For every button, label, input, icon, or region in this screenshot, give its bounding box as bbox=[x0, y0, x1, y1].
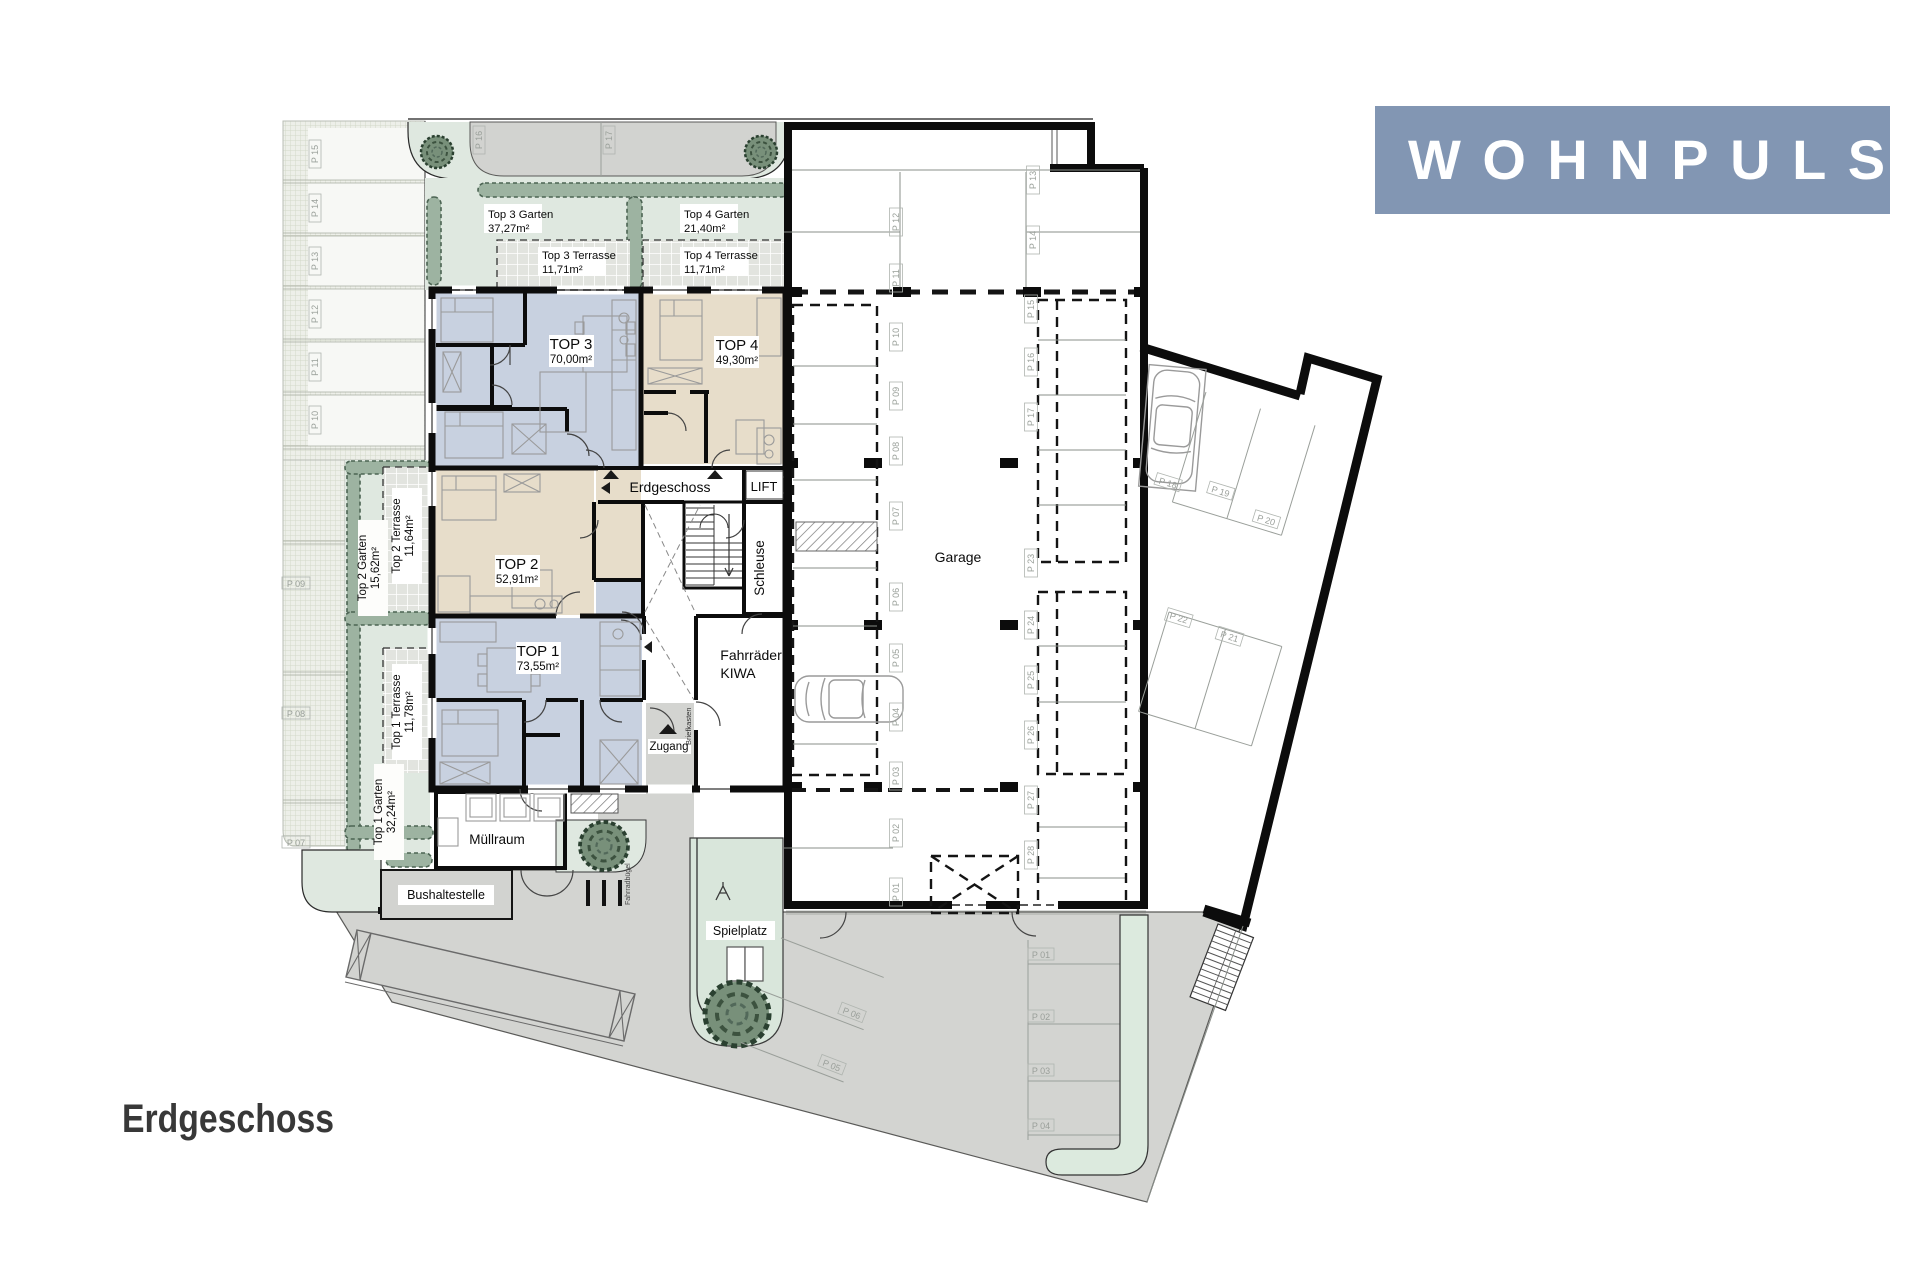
svg-text:Erdgeschoss: Erdgeschoss bbox=[122, 1097, 334, 1141]
svg-text:Top 4 Garten: Top 4 Garten bbox=[684, 209, 749, 221]
svg-text:P 10: P 10 bbox=[310, 411, 320, 429]
svg-text:P 23: P 23 bbox=[1026, 554, 1036, 572]
svg-text:WOHNPULS: WOHNPULS bbox=[1408, 128, 1907, 191]
svg-text:Top 1 Terrasse: Top 1 Terrasse bbox=[391, 674, 403, 749]
svg-text:P 05: P 05 bbox=[891, 649, 901, 667]
svg-text:P 17: P 17 bbox=[1026, 408, 1036, 426]
svg-text:Zugang: Zugang bbox=[649, 741, 688, 753]
svg-text:Top 3 Terrasse: Top 3 Terrasse bbox=[542, 250, 616, 262]
svg-text:Top 4 Terrasse: Top 4 Terrasse bbox=[684, 250, 758, 262]
svg-text:70,00m²: 70,00m² bbox=[550, 354, 592, 366]
svg-text:11,71m²: 11,71m² bbox=[684, 264, 725, 276]
svg-text:11,71m²: 11,71m² bbox=[542, 264, 583, 276]
svg-text:P 08: P 08 bbox=[287, 709, 305, 719]
svg-text:P 13: P 13 bbox=[1028, 171, 1038, 189]
svg-text:P 03: P 03 bbox=[1032, 1066, 1050, 1076]
svg-text:Müllraum: Müllraum bbox=[469, 832, 525, 847]
svg-text:P 01: P 01 bbox=[1032, 950, 1050, 960]
svg-text:P 14: P 14 bbox=[310, 199, 320, 217]
svg-text:P 24: P 24 bbox=[1026, 616, 1036, 634]
svg-text:Erdgeschoss: Erdgeschoss bbox=[630, 479, 711, 495]
svg-text:Fahrradbügel: Fahrradbügel bbox=[625, 863, 632, 905]
svg-text:11,64m²: 11,64m² bbox=[404, 515, 416, 557]
svg-text:P 11: P 11 bbox=[310, 358, 320, 376]
svg-text:Schleuse: Schleuse bbox=[752, 540, 767, 596]
svg-text:Top 2 Terrasse: Top 2 Terrasse bbox=[391, 498, 403, 573]
svg-text:P 09: P 09 bbox=[287, 579, 305, 589]
svg-text:P 07: P 07 bbox=[891, 507, 901, 525]
svg-text:P 02: P 02 bbox=[1032, 1012, 1050, 1022]
svg-text:37,27m²: 37,27m² bbox=[488, 223, 530, 235]
svg-text:Top 3 Garten: Top 3 Garten bbox=[488, 209, 553, 221]
svg-text:P 07: P 07 bbox=[287, 838, 305, 848]
svg-text:49,30m²: 49,30m² bbox=[716, 355, 758, 367]
svg-text:Top 2 Garten: Top 2 Garten bbox=[357, 535, 369, 601]
svg-text:11,78m²: 11,78m² bbox=[404, 691, 416, 733]
svg-text:LIFT: LIFT bbox=[751, 479, 778, 494]
svg-text:52,91m²: 52,91m² bbox=[496, 574, 538, 586]
svg-text:P 04: P 04 bbox=[1032, 1121, 1050, 1131]
svg-text:P 16: P 16 bbox=[1026, 353, 1036, 371]
svg-text:32,24m²: 32,24m² bbox=[386, 791, 398, 833]
svg-text:15,62m²: 15,62m² bbox=[370, 547, 382, 589]
svg-text:21,40m²: 21,40m² bbox=[684, 223, 726, 235]
svg-text:P 11: P 11 bbox=[891, 269, 901, 287]
svg-text:P 28: P 28 bbox=[1026, 846, 1036, 864]
svg-text:Bushaltestelle: Bushaltestelle bbox=[407, 888, 485, 902]
svg-text:Garage: Garage bbox=[935, 549, 982, 565]
svg-text:P 12: P 12 bbox=[310, 305, 320, 323]
svg-text:P 15: P 15 bbox=[1026, 300, 1036, 318]
svg-text:P 08: P 08 bbox=[891, 442, 901, 460]
svg-text:P 17: P 17 bbox=[604, 131, 614, 149]
svg-text:P 13: P 13 bbox=[310, 252, 320, 270]
svg-text:P 06: P 06 bbox=[891, 588, 901, 606]
svg-text:Fahrräder: Fahrräder bbox=[720, 647, 782, 663]
svg-text:P 27: P 27 bbox=[1026, 791, 1036, 809]
svg-text:P 04: P 04 bbox=[891, 708, 901, 726]
svg-text:Spielplatz: Spielplatz bbox=[713, 924, 767, 938]
svg-text:P 15: P 15 bbox=[310, 145, 320, 163]
svg-text:P 12: P 12 bbox=[891, 213, 901, 231]
svg-text:TOP 1: TOP 1 bbox=[517, 643, 560, 660]
svg-text:P 02: P 02 bbox=[891, 824, 901, 842]
svg-text:TOP 2: TOP 2 bbox=[496, 556, 539, 573]
svg-text:P 01: P 01 bbox=[891, 883, 901, 901]
svg-text:Briefkasten: Briefkasten bbox=[684, 707, 693, 745]
svg-text:P 09: P 09 bbox=[891, 387, 901, 405]
svg-text:73,55m²: 73,55m² bbox=[517, 661, 559, 673]
svg-text:P 25: P 25 bbox=[1026, 671, 1036, 689]
svg-text:Top 1 Garten: Top 1 Garten bbox=[373, 779, 385, 845]
svg-text:P 03: P 03 bbox=[891, 767, 901, 785]
svg-text:P 16: P 16 bbox=[474, 131, 484, 149]
svg-text:P 10: P 10 bbox=[891, 328, 901, 346]
svg-text:KIWA: KIWA bbox=[720, 665, 756, 681]
svg-text:P 26: P 26 bbox=[1026, 726, 1036, 744]
svg-text:TOP 4: TOP 4 bbox=[716, 337, 759, 354]
svg-text:TOP 3: TOP 3 bbox=[550, 336, 593, 353]
svg-text:P 14: P 14 bbox=[1028, 231, 1038, 249]
